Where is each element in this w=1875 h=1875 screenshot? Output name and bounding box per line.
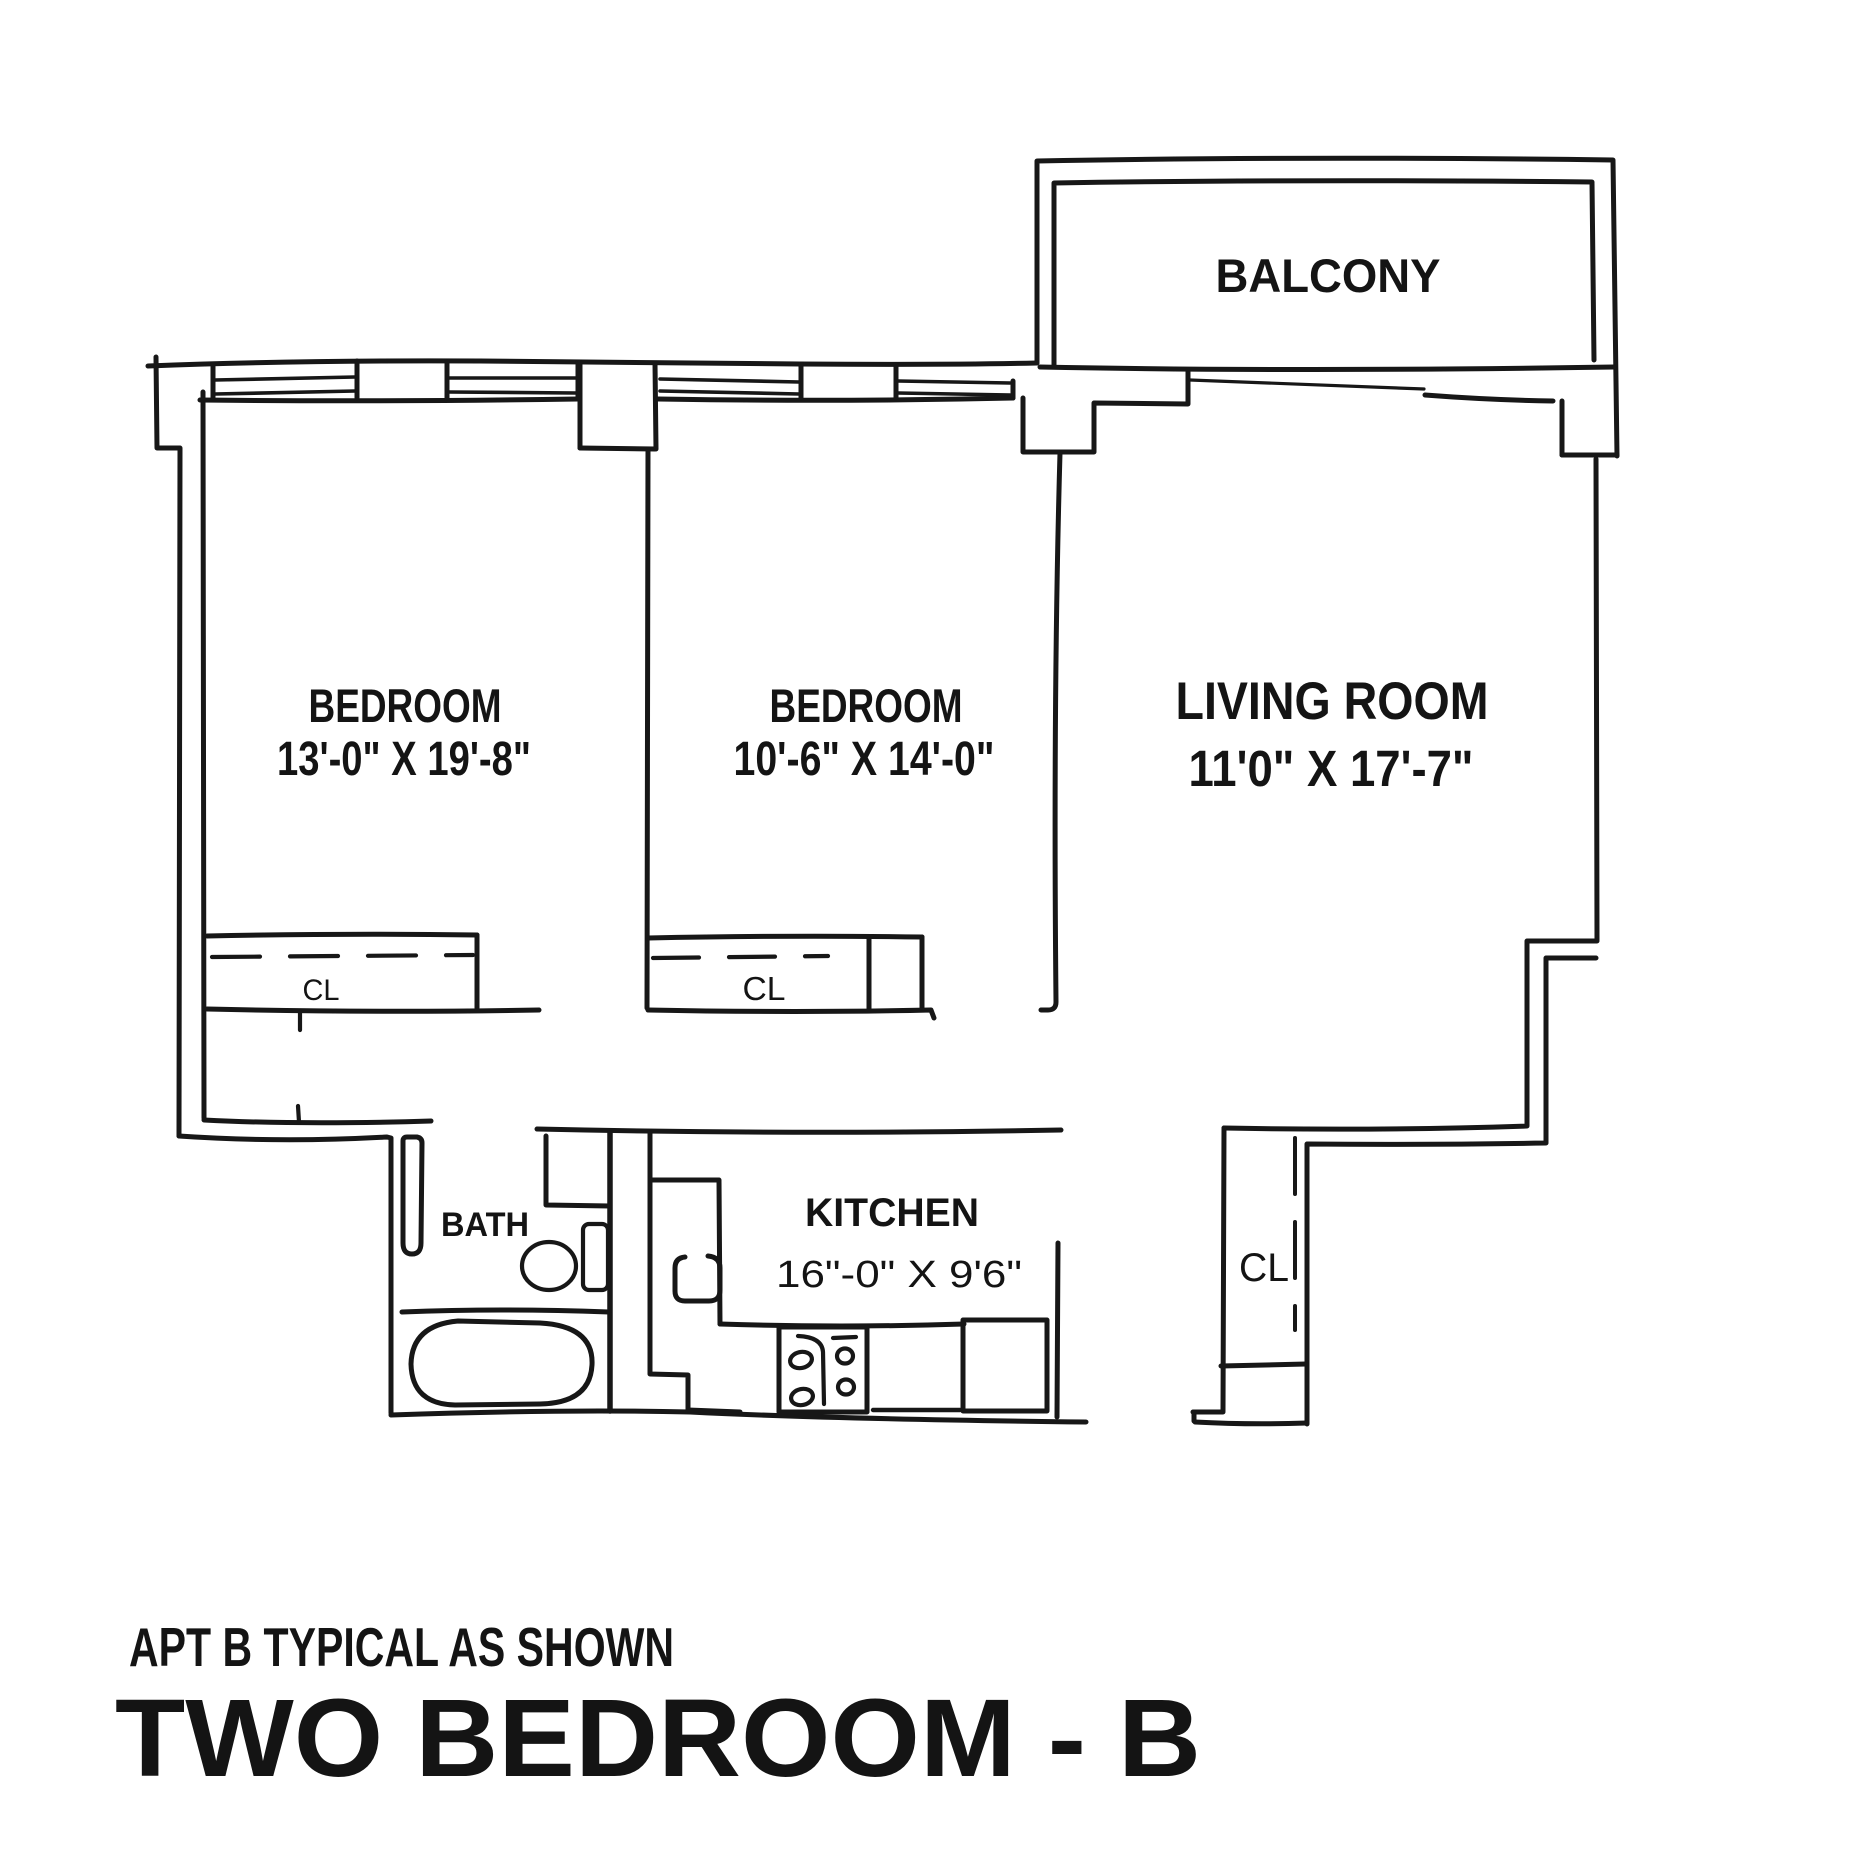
svg-text:BEDROOM: BEDROOM [770,679,963,732]
svg-text:11'0" X 17'-7": 11'0" X 17'-7" [1189,740,1474,797]
svg-text:10'-6" X 14'-0": 10'-6" X 14'-0" [734,733,995,786]
svg-text:BALCONY: BALCONY [1216,249,1441,302]
svg-text:LIVING ROOM: LIVING ROOM [1176,672,1489,731]
svg-text:16"-0" X 9'6": 16"-0" X 9'6" [776,1254,1022,1296]
svg-text:APT B TYPICAL AS SHOWN: APT B TYPICAL AS SHOWN [129,1616,674,1678]
svg-text:BEDROOM: BEDROOM [309,679,502,732]
svg-text:CL: CL [743,970,786,1007]
svg-text:BATH: BATH [441,1206,529,1244]
svg-text:13'-0" X 19'-8": 13'-0" X 19'-8" [277,733,531,786]
svg-text:TWO BEDROOM - B: TWO BEDROOM - B [115,1677,1201,1800]
svg-text:CL: CL [1239,1246,1289,1290]
svg-text:CL: CL [303,974,340,1007]
svg-text:KITCHEN: KITCHEN [805,1191,979,1235]
